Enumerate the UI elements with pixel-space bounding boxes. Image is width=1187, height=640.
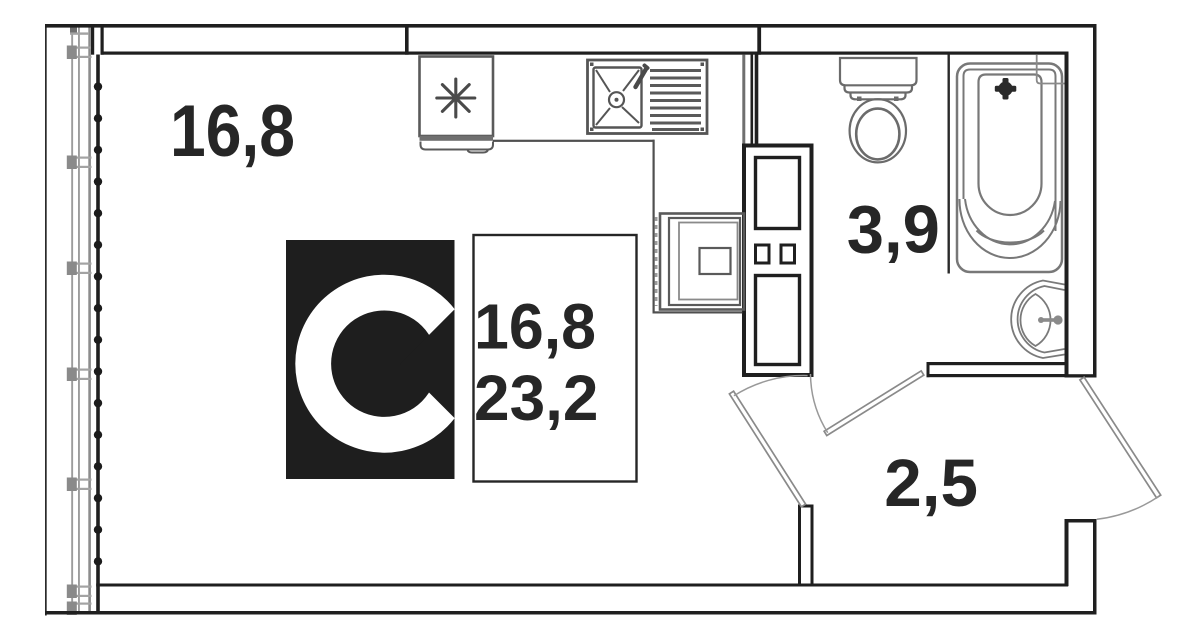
svg-text:16,8: 16,8 (474, 291, 596, 363)
svg-text:2,5: 2,5 (884, 446, 978, 521)
svg-text:16,8: 16,8 (170, 91, 295, 172)
svg-text:23,2: 23,2 (474, 362, 599, 434)
svg-text:3,9: 3,9 (847, 192, 940, 268)
